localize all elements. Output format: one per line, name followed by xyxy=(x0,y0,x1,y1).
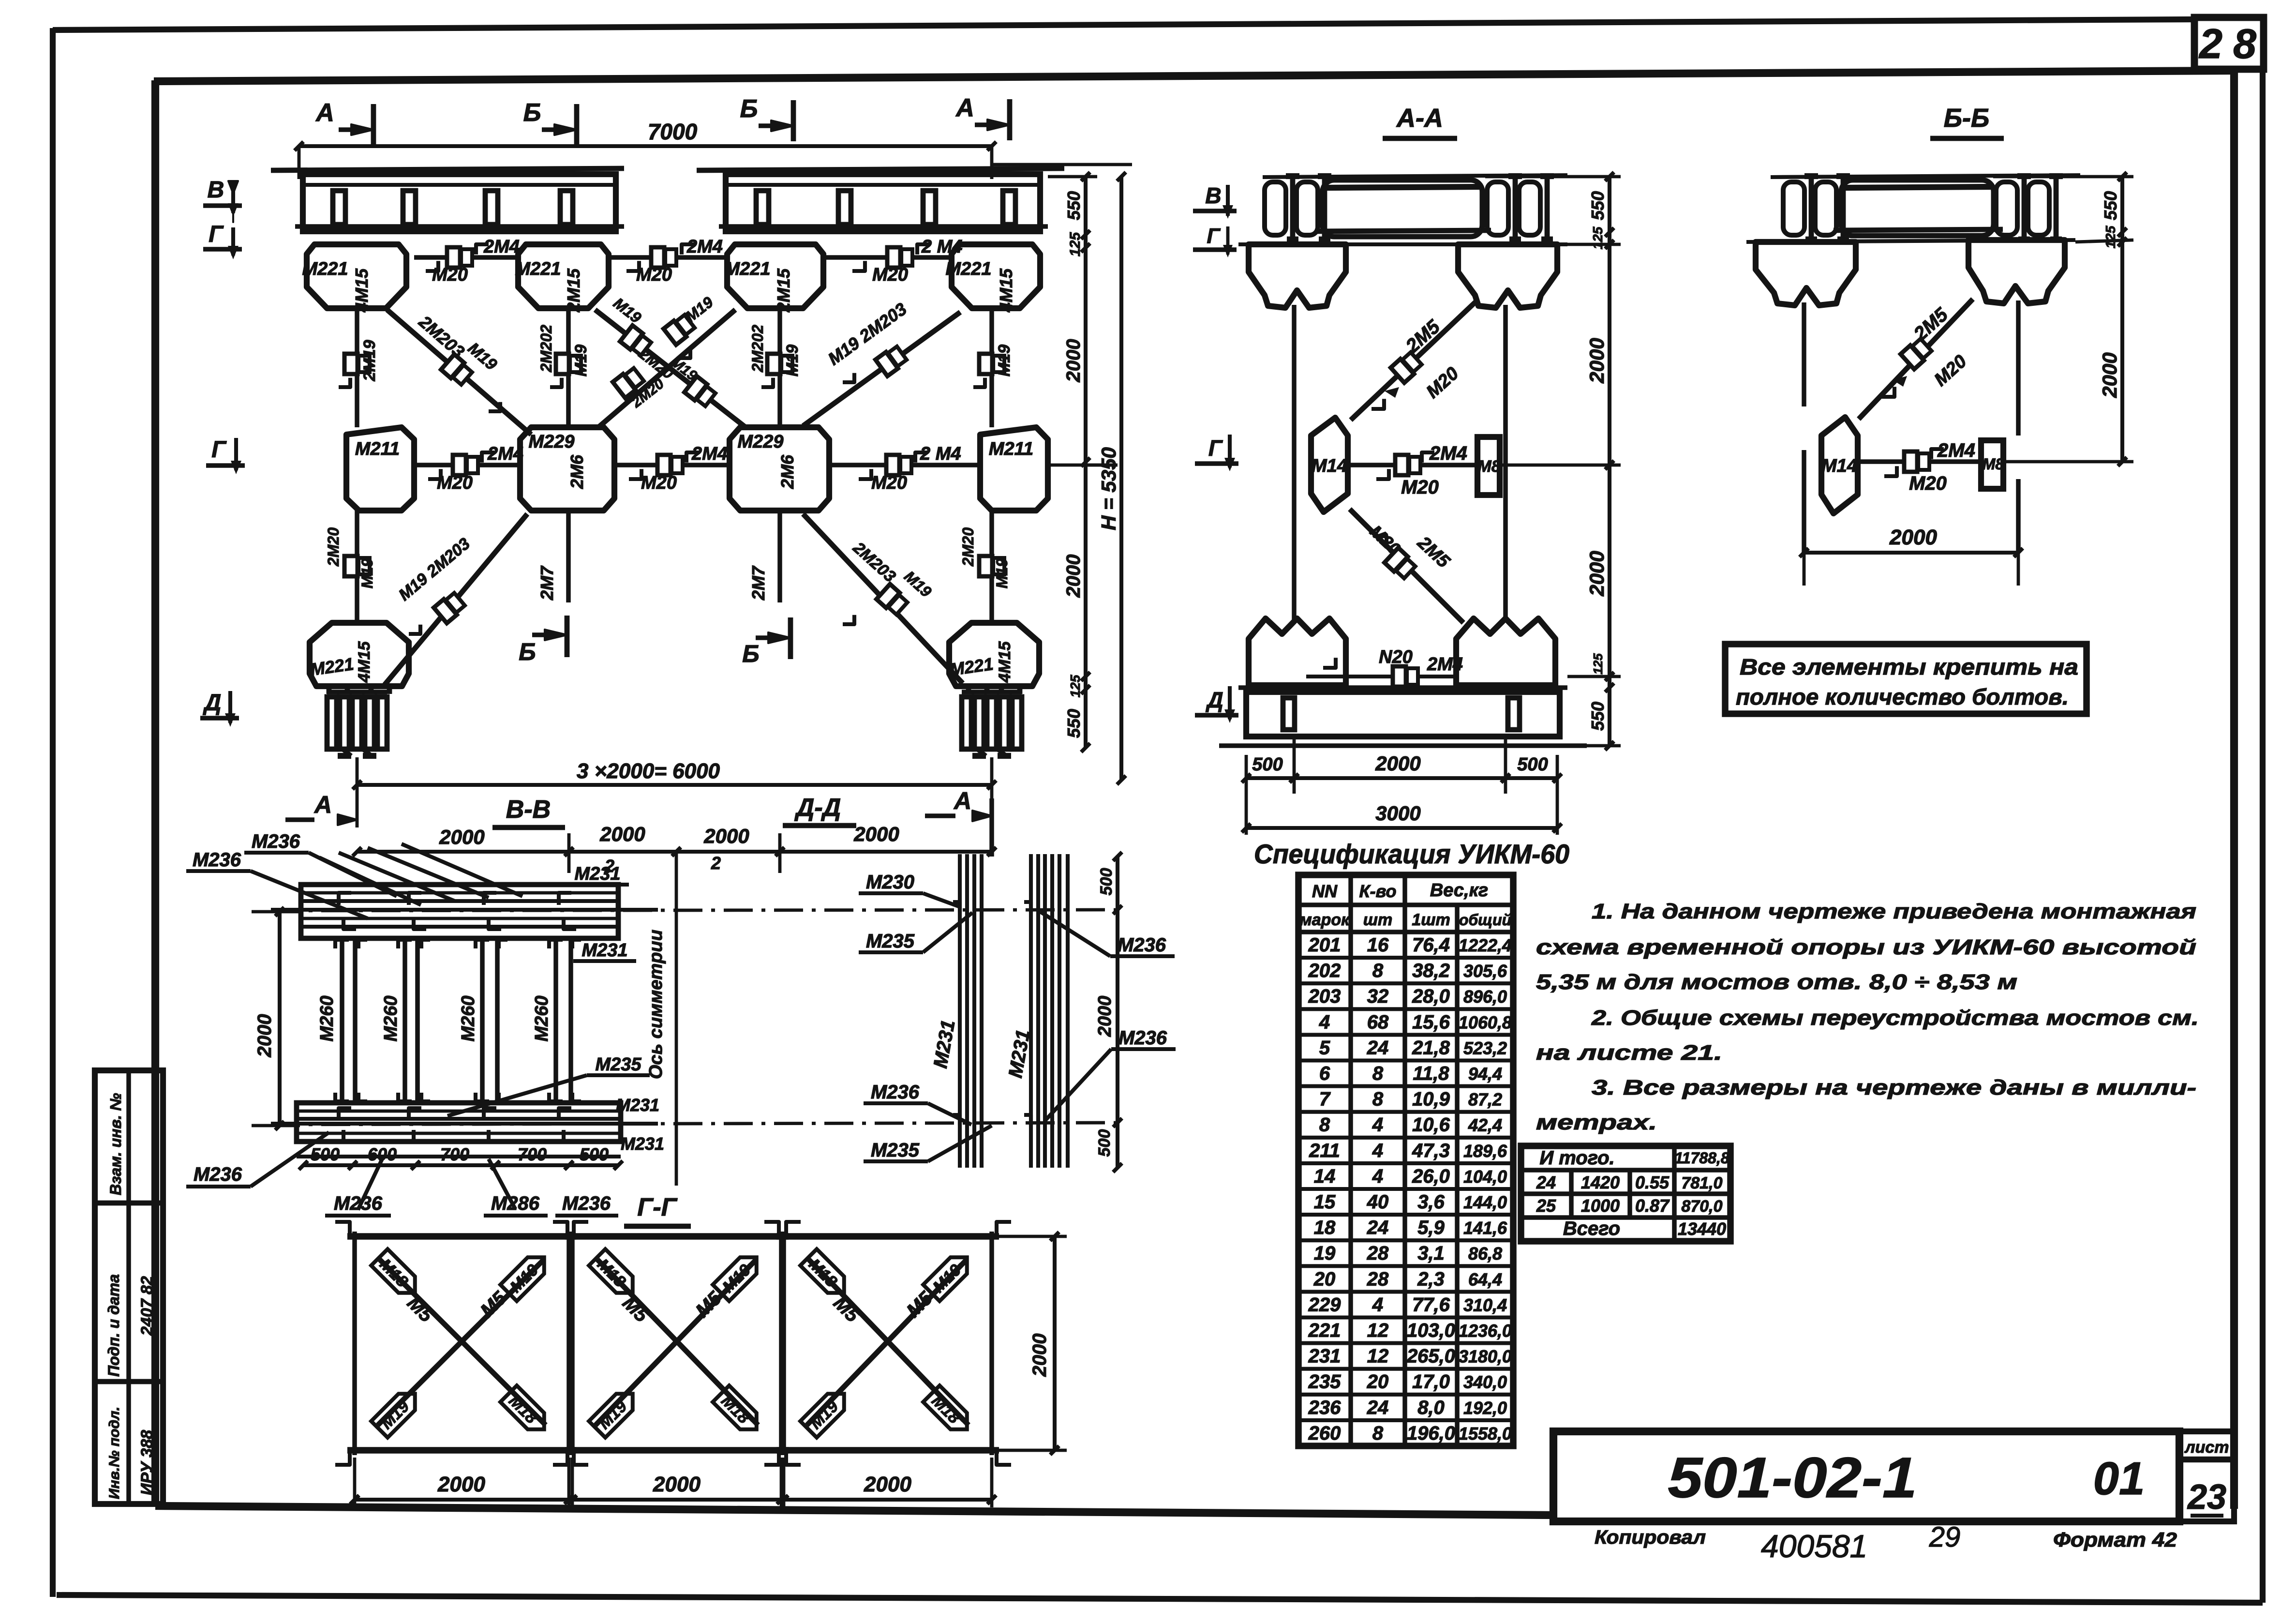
svg-text:Г: Г xyxy=(211,437,227,463)
svg-text:2М15: 2М15 xyxy=(564,268,583,313)
svg-text:2000: 2000 xyxy=(437,1473,485,1496)
svg-text:550: 550 xyxy=(1064,191,1084,220)
svg-text:А: А xyxy=(313,791,332,818)
svg-text:8: 8 xyxy=(1372,1423,1384,1444)
svg-text:Г-Г: Г-Г xyxy=(637,1193,677,1221)
svg-text:87,2: 87,2 xyxy=(1468,1090,1502,1110)
svg-text:2: 2 xyxy=(711,853,721,873)
svg-text:М20: М20 xyxy=(636,265,672,285)
svg-text:М236: М236 xyxy=(334,1193,383,1214)
svg-text:305,6: 305,6 xyxy=(1463,961,1507,981)
svg-text:шт: шт xyxy=(1363,911,1392,929)
svg-text:2000: 2000 xyxy=(1029,1334,1050,1377)
svg-text:К-во: К-во xyxy=(1359,881,1397,901)
svg-text:11,8: 11,8 xyxy=(1413,1063,1450,1084)
svg-text:2М7: 2М7 xyxy=(537,565,557,601)
svg-text:М8: М8 xyxy=(1983,455,2004,473)
svg-text:8: 8 xyxy=(1372,960,1384,981)
svg-text:196,0: 196,0 xyxy=(1407,1423,1455,1444)
svg-text:01: 01 xyxy=(2093,1453,2145,1504)
svg-text:125: 125 xyxy=(2103,226,2118,248)
svg-text:25: 25 xyxy=(1536,1196,1556,1216)
svg-text:13440: 13440 xyxy=(1678,1219,1726,1239)
svg-text:24: 24 xyxy=(1367,1397,1389,1418)
svg-text:2000: 2000 xyxy=(439,826,484,848)
svg-text:Все элементы крепить на: Все элементы крепить на xyxy=(1740,654,2078,679)
svg-text:М235: М235 xyxy=(871,1140,920,1161)
svg-text:3,1: 3,1 xyxy=(1417,1243,1445,1264)
svg-text:М230: М230 xyxy=(866,872,914,893)
svg-text:2,3: 2,3 xyxy=(1417,1268,1445,1290)
svg-text:2407 82: 2407 82 xyxy=(138,1276,156,1336)
svg-text:7000: 7000 xyxy=(648,119,698,144)
svg-text:4: 4 xyxy=(1372,1294,1383,1315)
svg-text:2М202: 2М202 xyxy=(537,325,555,373)
svg-text:11788,8: 11788,8 xyxy=(1674,1149,1729,1167)
svg-text:203: 203 xyxy=(1308,986,1341,1007)
svg-text:1шт: 1шт xyxy=(1412,911,1450,929)
svg-text:141,6: 141,6 xyxy=(1463,1218,1507,1238)
svg-text:М286: М286 xyxy=(491,1193,540,1214)
svg-text:231: 231 xyxy=(1308,1346,1341,1367)
svg-text:235: 235 xyxy=(1308,1371,1341,1393)
svg-text:32: 32 xyxy=(1367,986,1389,1007)
svg-text:68: 68 xyxy=(1367,1011,1389,1033)
svg-text:500: 500 xyxy=(311,1144,340,1164)
svg-text:4: 4 xyxy=(1372,1114,1383,1136)
svg-text:Б-Б: Б-Б xyxy=(1944,104,1989,133)
svg-text:М19: М19 xyxy=(358,558,376,588)
svg-text:М20: М20 xyxy=(872,265,908,285)
svg-text:15,6: 15,6 xyxy=(1412,1011,1450,1033)
svg-text:4М15: 4М15 xyxy=(996,641,1014,683)
svg-text:23: 23 xyxy=(2187,1478,2226,1517)
svg-text:А: А xyxy=(315,99,334,127)
svg-text:Копировал: Копировал xyxy=(1595,1527,1706,1548)
svg-text:полное количество болтов.: полное количество болтов. xyxy=(1736,684,2069,709)
svg-text:М19: М19 xyxy=(993,558,1011,588)
svg-text:8,0: 8,0 xyxy=(1417,1397,1445,1418)
svg-text:М236: М236 xyxy=(562,1193,611,1214)
svg-text:28: 28 xyxy=(1367,1243,1389,1264)
svg-text:В-В: В-В xyxy=(506,796,551,824)
svg-text:310,4: 310,4 xyxy=(1463,1295,1507,1315)
svg-text:8: 8 xyxy=(1372,1063,1384,1084)
svg-text:125: 125 xyxy=(1068,675,1083,697)
svg-text:А: А xyxy=(953,787,971,814)
svg-text:77,6: 77,6 xyxy=(1412,1294,1450,1315)
svg-text:500: 500 xyxy=(580,1144,609,1164)
svg-text:2000: 2000 xyxy=(1375,752,1420,775)
svg-text:А-А: А-А xyxy=(1396,104,1443,133)
svg-text:125: 125 xyxy=(1590,226,1605,249)
svg-text:М221: М221 xyxy=(515,259,561,279)
svg-text:М14: М14 xyxy=(1312,456,1347,476)
svg-text:3000: 3000 xyxy=(1375,802,1420,825)
svg-text:501-02-1: 501-02-1 xyxy=(1668,1446,1917,1510)
svg-text:103,0: 103,0 xyxy=(1407,1320,1455,1341)
svg-text:236: 236 xyxy=(1308,1397,1341,1418)
svg-text:2М19: 2М19 xyxy=(360,340,379,381)
svg-text:2000: 2000 xyxy=(1585,338,1608,383)
svg-text:Г: Г xyxy=(1208,436,1223,461)
svg-text:21,8: 21,8 xyxy=(1412,1037,1450,1058)
svg-text:N20: N20 xyxy=(1379,647,1413,667)
svg-text:15: 15 xyxy=(1314,1191,1336,1213)
svg-text:40: 40 xyxy=(1367,1191,1389,1213)
svg-text:24: 24 xyxy=(1367,1037,1389,1058)
svg-text:1222,4: 1222,4 xyxy=(1459,935,1512,955)
svg-text:В: В xyxy=(208,177,224,203)
svg-text:2М7: 2М7 xyxy=(748,565,768,601)
svg-text:4М15: 4М15 xyxy=(352,268,372,313)
svg-text:2 М4: 2 М4 xyxy=(921,237,962,257)
svg-text:2: 2 xyxy=(2198,21,2222,67)
svg-text:64,4: 64,4 xyxy=(1468,1269,1502,1289)
svg-text:2М4: 2М4 xyxy=(1429,443,1467,464)
svg-text:4: 4 xyxy=(1372,1140,1383,1161)
svg-text:М231: М231 xyxy=(621,1134,664,1154)
svg-text:20: 20 xyxy=(1367,1371,1389,1393)
svg-text:М19: М19 xyxy=(995,345,1014,376)
svg-text:М231: М231 xyxy=(574,864,620,884)
svg-text:24: 24 xyxy=(1367,1217,1389,1238)
svg-text:144,0: 144,0 xyxy=(1463,1192,1507,1212)
svg-text:М221: М221 xyxy=(945,259,991,279)
svg-text:М20: М20 xyxy=(871,473,907,493)
svg-text:1236,0: 1236,0 xyxy=(1459,1321,1512,1341)
svg-text:М231: М231 xyxy=(581,940,627,961)
svg-text:125: 125 xyxy=(1067,232,1083,256)
svg-text:5: 5 xyxy=(1319,1037,1330,1058)
svg-text:2000: 2000 xyxy=(2098,352,2121,398)
svg-text:М211: М211 xyxy=(355,439,400,459)
svg-text:7: 7 xyxy=(1319,1089,1331,1110)
svg-text:202: 202 xyxy=(1308,960,1341,981)
svg-text:5,9: 5,9 xyxy=(1417,1217,1445,1238)
svg-text:0.87: 0.87 xyxy=(1635,1196,1670,1216)
svg-text:Б: Б xyxy=(523,99,541,127)
svg-text:2000: 2000 xyxy=(1063,339,1084,383)
svg-text:М235: М235 xyxy=(866,931,915,952)
svg-text:8: 8 xyxy=(1319,1114,1330,1136)
svg-text:В: В xyxy=(1205,183,1221,208)
svg-text:Н = 5350: Н = 5350 xyxy=(1097,447,1120,530)
svg-text:М20: М20 xyxy=(1909,473,1947,494)
svg-text:3,6: 3,6 xyxy=(1417,1191,1445,1213)
svg-text:М8: М8 xyxy=(1477,457,1500,476)
svg-text:2000: 2000 xyxy=(703,825,749,847)
svg-text:500: 500 xyxy=(1517,754,1548,775)
svg-text:схема временной опоры из У: схема временной опоры из УИКМ-60 высотой xyxy=(1536,935,2196,959)
svg-text:211: 211 xyxy=(1309,1140,1340,1161)
svg-text:2М6: 2М6 xyxy=(567,454,587,489)
svg-text:Б: Б xyxy=(742,640,759,667)
svg-text:14: 14 xyxy=(1314,1166,1336,1187)
svg-text:М19: М19 xyxy=(572,345,590,376)
svg-text:2000: 2000 xyxy=(599,823,645,845)
svg-text:550: 550 xyxy=(2101,191,2120,220)
svg-text:М236: М236 xyxy=(252,831,300,852)
svg-text:Б: Б xyxy=(740,95,758,123)
svg-text:192,0: 192,0 xyxy=(1463,1398,1507,1418)
svg-text:1. На данном чертеже приведен: 1. На данном чертеже приведена монтажная xyxy=(1592,900,2196,923)
svg-text:Д-Д: Д-Д xyxy=(794,794,841,822)
svg-text:10,9: 10,9 xyxy=(1412,1089,1450,1110)
svg-text:М229: М229 xyxy=(528,432,574,452)
svg-text:М231: М231 xyxy=(616,1095,659,1115)
svg-text:10,6: 10,6 xyxy=(1412,1114,1450,1136)
svg-text:2М15: 2М15 xyxy=(774,268,793,313)
svg-text:А: А xyxy=(955,94,974,122)
svg-text:12: 12 xyxy=(1367,1320,1389,1341)
svg-text:Ось симметрии: Ось симметрии xyxy=(646,930,666,1079)
svg-text:2М6: 2М6 xyxy=(777,454,797,489)
svg-text:М229: М229 xyxy=(737,432,783,452)
svg-text:125: 125 xyxy=(1591,653,1605,675)
svg-text:221: 221 xyxy=(1308,1320,1341,1341)
svg-text:Д: Д xyxy=(203,690,222,716)
svg-text:4: 4 xyxy=(1372,1166,1383,1187)
svg-text:2М20: 2М20 xyxy=(959,527,977,567)
svg-text:201: 201 xyxy=(1308,934,1341,956)
svg-text:550: 550 xyxy=(1588,191,1608,220)
svg-text:М260: М260 xyxy=(532,995,552,1041)
svg-text:Б: Б xyxy=(519,638,536,665)
svg-text:4М15: 4М15 xyxy=(996,268,1016,313)
svg-text:76,4: 76,4 xyxy=(1412,934,1450,956)
svg-text:8: 8 xyxy=(2233,21,2256,67)
svg-text:1060,8: 1060,8 xyxy=(1459,1012,1512,1032)
svg-text:18: 18 xyxy=(1314,1217,1336,1238)
svg-text:19: 19 xyxy=(1314,1243,1336,1264)
svg-text:М236: М236 xyxy=(194,1164,242,1185)
svg-text:М236: М236 xyxy=(871,1082,920,1103)
svg-text:38,2: 38,2 xyxy=(1412,960,1450,981)
svg-text:М14: М14 xyxy=(1821,456,1857,476)
svg-text:5,35 м для мостов отв. 8,0: 5,35 м для мостов отв. 8,0 ÷ 8,53 м xyxy=(1536,970,2017,994)
svg-text:2. Общие схемы переустройст: 2. Общие схемы переустройства мостов см. xyxy=(1591,1006,2199,1030)
svg-text:1000: 1000 xyxy=(1581,1196,1620,1216)
svg-text:42,4: 42,4 xyxy=(1468,1115,1502,1135)
svg-text:2000: 2000 xyxy=(1095,996,1115,1038)
svg-text:8: 8 xyxy=(1372,1089,1384,1110)
svg-text:Вес,кг: Вес,кг xyxy=(1430,880,1488,901)
svg-text:М235: М235 xyxy=(595,1054,641,1075)
svg-text:метрах.: метрах. xyxy=(1536,1111,1657,1134)
svg-text:2000: 2000 xyxy=(254,1014,275,1058)
svg-text:2000: 2000 xyxy=(653,1473,701,1496)
svg-text:марок: марок xyxy=(1300,911,1351,929)
svg-text:М20: М20 xyxy=(641,473,677,493)
svg-text:6: 6 xyxy=(1319,1063,1330,1084)
svg-text:24: 24 xyxy=(1536,1173,1556,1192)
svg-text:20: 20 xyxy=(1313,1268,1336,1290)
svg-text:500: 500 xyxy=(1095,1129,1114,1157)
svg-text:М260: М260 xyxy=(317,995,337,1041)
svg-text:М236: М236 xyxy=(193,849,241,871)
svg-text:3 ×2000= 6000: 3 ×2000= 6000 xyxy=(577,759,720,783)
svg-text:28: 28 xyxy=(1367,1268,1389,1290)
svg-text:3. Все размеры на чертеже: 3. Все размеры на чертеже даны в милли- xyxy=(1592,1076,2196,1099)
svg-text:2000: 2000 xyxy=(1889,526,1937,549)
svg-text:1558,0: 1558,0 xyxy=(1459,1424,1512,1444)
svg-text:Г: Г xyxy=(1207,224,1221,248)
svg-text:12: 12 xyxy=(1367,1346,1389,1367)
svg-text:260: 260 xyxy=(1308,1423,1341,1444)
svg-text:Формат 42: Формат 42 xyxy=(2053,1528,2177,1551)
svg-text:И того.: И того. xyxy=(1539,1147,1614,1169)
svg-text:ИРУ 388: ИРУ 388 xyxy=(138,1430,156,1495)
svg-text:Подп. и дата: Подп. и дата xyxy=(105,1274,122,1377)
svg-text:2М4: 2М4 xyxy=(483,237,520,257)
svg-text:550: 550 xyxy=(1064,709,1084,738)
svg-text:2000: 2000 xyxy=(864,1473,911,1496)
svg-text:лист: лист xyxy=(2184,1438,2229,1457)
svg-text:870,0: 870,0 xyxy=(1681,1197,1722,1216)
svg-text:189,6: 189,6 xyxy=(1463,1141,1507,1161)
svg-text:29: 29 xyxy=(1929,1521,1961,1553)
svg-text:47,3: 47,3 xyxy=(1412,1140,1450,1161)
svg-text:781,0: 781,0 xyxy=(1681,1174,1722,1192)
svg-text:Г: Г xyxy=(209,222,224,247)
svg-text:2000: 2000 xyxy=(1063,555,1084,598)
svg-text:Взам. инв. №: Взам. инв. № xyxy=(107,1093,124,1195)
svg-text:523,2: 523,2 xyxy=(1463,1038,1507,1058)
svg-text:М236: М236 xyxy=(1118,1027,1167,1049)
svg-text:Инв.№ подл.: Инв.№ подл. xyxy=(106,1407,122,1499)
svg-text:2000: 2000 xyxy=(853,823,899,845)
svg-text:М236: М236 xyxy=(1118,934,1166,956)
svg-text:16: 16 xyxy=(1367,934,1389,956)
svg-text:400581: 400581 xyxy=(1761,1528,1867,1564)
svg-text:86,8: 86,8 xyxy=(1468,1244,1502,1263)
svg-text:Всего: Всего xyxy=(1563,1218,1620,1239)
svg-text:на листе 21.: на листе 21. xyxy=(1536,1041,1722,1065)
svg-text:М221: М221 xyxy=(302,259,348,279)
svg-text:550: 550 xyxy=(1588,702,1608,731)
svg-text:104,0: 104,0 xyxy=(1463,1167,1507,1187)
svg-text:3180,0: 3180,0 xyxy=(1459,1347,1512,1367)
svg-text:94,4: 94,4 xyxy=(1468,1064,1502,1084)
svg-text:общий: общий xyxy=(1459,911,1511,929)
svg-text:2М202: 2М202 xyxy=(749,325,766,373)
svg-text:700: 700 xyxy=(440,1144,469,1164)
svg-text:500: 500 xyxy=(1252,754,1282,775)
svg-text:896,0: 896,0 xyxy=(1463,987,1507,1007)
svg-text:4: 4 xyxy=(1319,1011,1330,1033)
svg-text:М260: М260 xyxy=(381,995,401,1041)
svg-text:0.55: 0.55 xyxy=(1635,1173,1670,1192)
svg-text:340,0: 340,0 xyxy=(1463,1372,1507,1392)
svg-text:Спецификация УИКМ-60: Спецификация УИКМ-60 xyxy=(1254,839,1569,869)
svg-text:NN: NN xyxy=(1312,881,1338,901)
svg-text:1420: 1420 xyxy=(1581,1173,1620,1192)
svg-text:М221: М221 xyxy=(724,259,770,279)
svg-text:28,0: 28,0 xyxy=(1412,986,1450,1007)
svg-text:М211: М211 xyxy=(989,439,1033,459)
svg-text:17,0: 17,0 xyxy=(1412,1371,1450,1393)
svg-text:265,0: 265,0 xyxy=(1406,1346,1455,1367)
svg-text:2М4: 2М4 xyxy=(686,237,723,257)
svg-text:2000: 2000 xyxy=(1585,551,1608,596)
svg-text:Д: Д xyxy=(1205,687,1223,712)
svg-text:2М20: 2М20 xyxy=(325,527,342,567)
svg-text:700: 700 xyxy=(518,1144,547,1164)
svg-text:2М4: 2М4 xyxy=(1427,654,1463,675)
svg-text:229: 229 xyxy=(1308,1294,1341,1315)
svg-text:М20: М20 xyxy=(1401,477,1439,498)
svg-text:4М15: 4М15 xyxy=(355,641,373,683)
svg-text:М260: М260 xyxy=(458,995,478,1041)
svg-text:26,0: 26,0 xyxy=(1412,1166,1450,1187)
svg-text:500: 500 xyxy=(1097,868,1116,896)
svg-text:М19: М19 xyxy=(783,345,802,376)
